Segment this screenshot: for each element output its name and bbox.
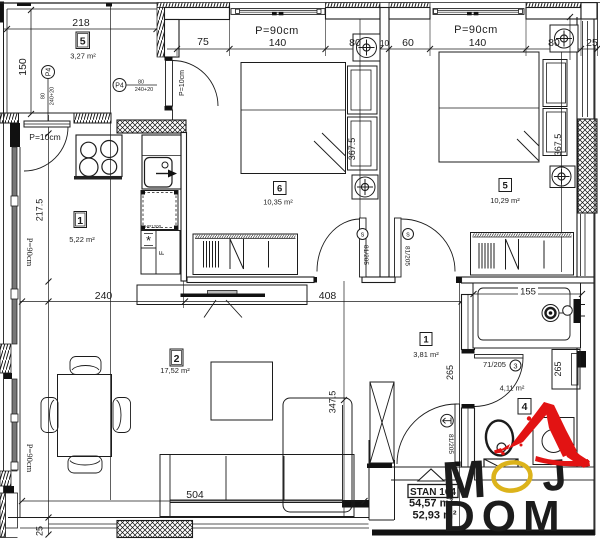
svg-text:81/205: 81/205 xyxy=(362,245,369,265)
svg-text:240: 240 xyxy=(95,290,113,302)
svg-text:HP1200: HP1200 xyxy=(145,224,162,229)
svg-text:6: 6 xyxy=(277,184,282,195)
svg-text:P=90cm: P=90cm xyxy=(255,25,299,37)
svg-text:P=10cm: P=10cm xyxy=(179,70,186,96)
svg-text:60: 60 xyxy=(402,37,414,49)
svg-text:140: 140 xyxy=(269,37,287,49)
svg-text:3,27 m²: 3,27 m² xyxy=(70,52,96,61)
svg-text:P=90cm: P=90cm xyxy=(25,238,35,267)
svg-text:3,81 m²: 3,81 m² xyxy=(413,350,439,359)
svg-text:75: 75 xyxy=(197,36,209,48)
svg-text:P=90cm: P=90cm xyxy=(454,24,498,36)
svg-text:80: 80 xyxy=(41,93,47,99)
svg-text:217.5: 217.5 xyxy=(35,199,45,222)
svg-text:71/205: 71/205 xyxy=(483,360,506,369)
svg-text:s: s xyxy=(361,232,365,239)
svg-text:25: 25 xyxy=(586,37,598,49)
svg-text:347.5: 347.5 xyxy=(328,391,338,414)
svg-text:P=90cm: P=90cm xyxy=(25,444,35,473)
svg-text:F: F xyxy=(159,251,166,255)
svg-text:4,11 m²: 4,11 m² xyxy=(500,384,525,393)
svg-text:218: 218 xyxy=(72,17,90,29)
svg-text:P4: P4 xyxy=(115,83,124,90)
svg-text:150: 150 xyxy=(17,58,29,76)
svg-text:5: 5 xyxy=(503,181,509,192)
svg-text:*: * xyxy=(146,233,151,248)
svg-text:367.5: 367.5 xyxy=(347,138,357,161)
svg-text:25: 25 xyxy=(35,526,45,536)
svg-text:80: 80 xyxy=(548,37,560,49)
svg-text:81/205: 81/205 xyxy=(404,246,411,266)
svg-text:P4: P4 xyxy=(46,68,53,77)
svg-text:4: 4 xyxy=(522,401,528,413)
svg-text:5: 5 xyxy=(80,36,86,48)
svg-text:408: 408 xyxy=(319,290,337,302)
svg-text:10,29 m²: 10,29 m² xyxy=(490,196,520,205)
svg-text:P=10cm: P=10cm xyxy=(29,132,60,142)
svg-text:140: 140 xyxy=(469,37,487,49)
svg-text:2: 2 xyxy=(174,353,180,365)
svg-text:DOM: DOM xyxy=(443,492,567,540)
svg-text:17,52 m²: 17,52 m² xyxy=(160,366,190,375)
svg-text:155: 155 xyxy=(520,287,536,298)
svg-text:1: 1 xyxy=(77,215,83,227)
svg-text:367.5: 367.5 xyxy=(553,134,563,157)
svg-text:10: 10 xyxy=(380,39,389,48)
svg-text:80: 80 xyxy=(349,37,361,49)
svg-text:265: 265 xyxy=(445,365,455,380)
svg-text:240+20: 240+20 xyxy=(135,87,154,93)
svg-text:240+20: 240+20 xyxy=(50,87,56,106)
svg-text:80: 80 xyxy=(138,80,144,86)
svg-text:5,22 m²: 5,22 m² xyxy=(69,235,95,244)
svg-text:1: 1 xyxy=(423,335,429,346)
svg-text:s: s xyxy=(406,232,410,239)
svg-text:3: 3 xyxy=(513,362,517,371)
svg-text:504: 504 xyxy=(186,489,204,501)
svg-text:10,35 m²: 10,35 m² xyxy=(263,198,293,207)
svg-text:265: 265 xyxy=(553,361,563,376)
